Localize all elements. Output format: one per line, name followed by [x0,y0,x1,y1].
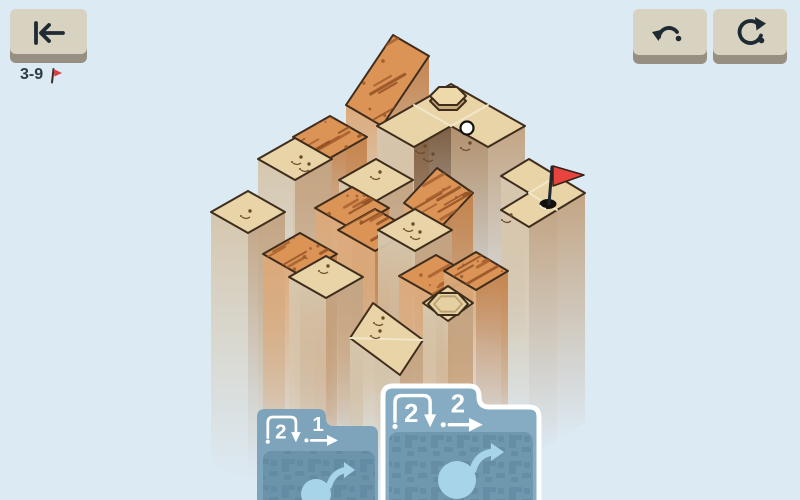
undo-icon [651,20,689,47]
card-moves: 2 1 [263,411,341,448]
roll-right-icon: 1 [303,411,341,448]
chip-down-icon: 2 [263,411,301,448]
card-moves: 2 2 [389,388,487,434]
game-stage: 3-9 [0,0,800,500]
restart-icon [733,16,767,50]
level-label: 3-9 [20,66,63,84]
chip-down-icon: 2 [389,388,437,434]
undo-button[interactable] [633,9,707,64]
level-number: 3-9 [20,66,43,84]
roll-value: 1 [312,413,323,436]
chip-value: 2 [275,420,286,443]
back-icon [29,19,69,47]
back-button[interactable] [10,9,87,63]
roll-right-icon: 2 [439,388,487,434]
hex-hole [428,293,468,315]
restart-button[interactable] [713,9,787,64]
hex-pad [430,87,466,110]
level-flag-icon [48,67,63,84]
card-ball-icon [438,461,476,499]
move-card-front[interactable]: 2 2 [377,380,545,500]
roll-value: 2 [451,391,465,419]
move-card-back[interactable]: 2 1 [254,404,384,500]
golf-ball [461,122,474,135]
chip-value: 2 [404,400,418,428]
